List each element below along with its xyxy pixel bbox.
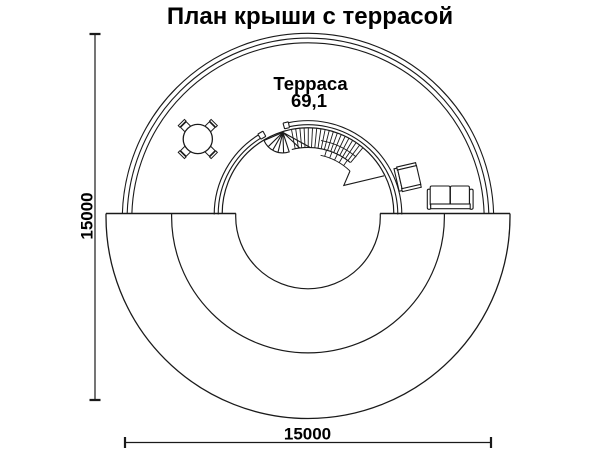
svg-text:План крыши с террасой: План крыши с террасой <box>167 3 453 30</box>
svg-text:15000: 15000 <box>77 192 96 239</box>
svg-text:69,1: 69,1 <box>291 90 327 111</box>
svg-text:15000: 15000 <box>284 425 331 444</box>
